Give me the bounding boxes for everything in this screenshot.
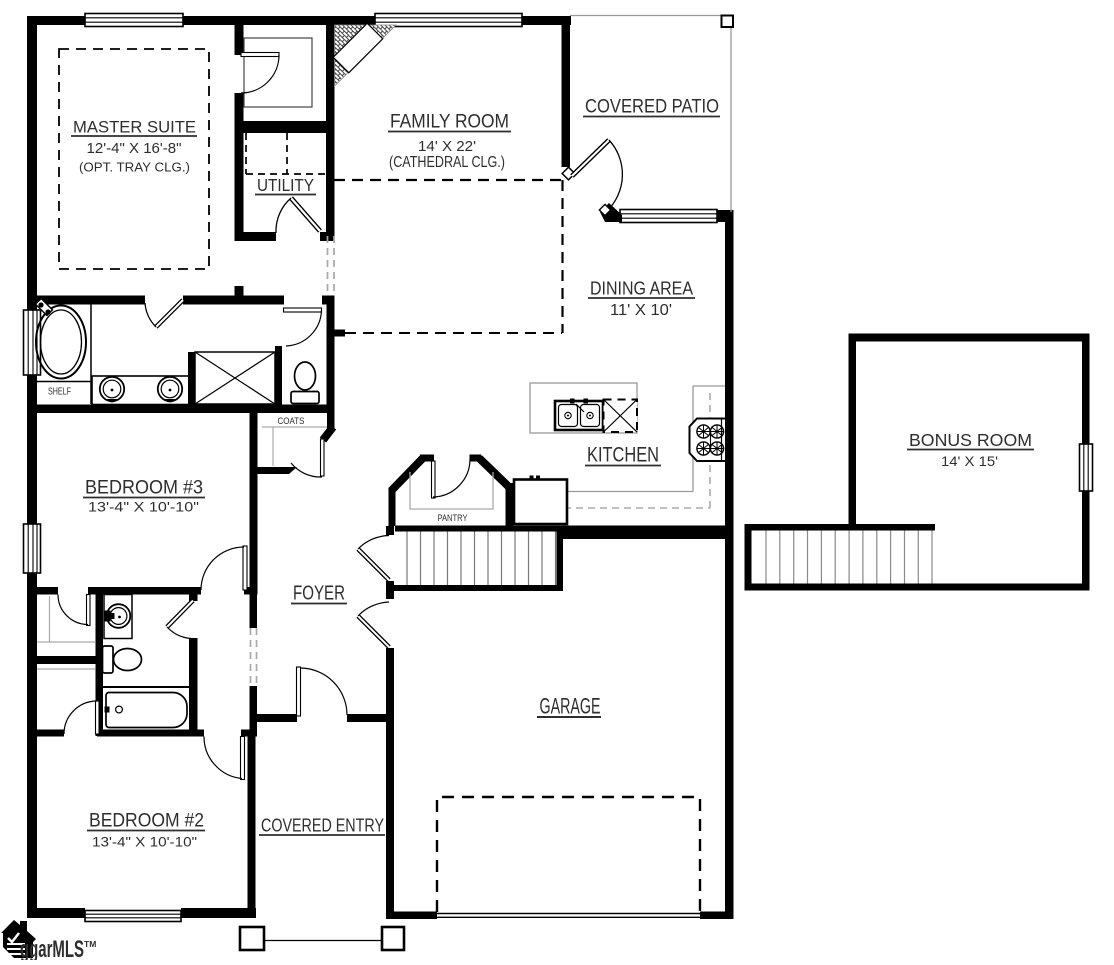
svg-text:FAMILY ROOM: FAMILY ROOM: [390, 111, 509, 133]
svg-text:BEDROOM #2: BEDROOM #2: [89, 811, 204, 832]
svg-text:KITCHEN: KITCHEN: [587, 444, 659, 467]
svg-text:14' X 15': 14' X 15': [941, 453, 998, 469]
svg-text:DINING AREA: DINING AREA: [590, 279, 693, 299]
svg-text:COVERED ENTRY: COVERED ENTRY: [261, 816, 384, 836]
svg-text:COATS: COATS: [278, 416, 305, 427]
svg-text:BONUS ROOM: BONUS ROOM: [909, 430, 1032, 450]
svg-text:(CATHEDRAL CLG.): (CATHEDRAL CLG.): [389, 154, 505, 171]
svg-text:FOYER: FOYER: [293, 583, 345, 605]
svg-text:UTILITY: UTILITY: [257, 175, 314, 195]
svg-text:MASTER SUITE: MASTER SUITE: [73, 118, 196, 137]
svg-text:SHELF: SHELF: [48, 387, 71, 398]
svg-text:13'-4" X 10'-10": 13'-4" X 10'-10": [92, 834, 197, 850]
svg-text:BEDROOM #3: BEDROOM #3: [85, 477, 203, 499]
svg-text:COVERED PATIO: COVERED PATIO: [585, 97, 719, 118]
svg-text:12'-4" X 16'-8": 12'-4" X 16'-8": [87, 141, 182, 157]
svg-text:11' X 10': 11' X 10': [610, 302, 672, 319]
svg-text:13'-4" X 10'-10": 13'-4" X 10'-10": [88, 499, 199, 515]
svg-text:TM: TM: [84, 939, 96, 949]
svg-text:GARAGE: GARAGE: [540, 694, 601, 719]
svg-text:14' X 22': 14' X 22': [418, 138, 476, 155]
svg-text:ggarMLS: ggarMLS: [20, 936, 84, 960]
svg-text:PANTRY: PANTRY: [438, 513, 469, 524]
svg-text:(OPT. TRAY CLG.): (OPT. TRAY CLG.): [79, 160, 190, 175]
